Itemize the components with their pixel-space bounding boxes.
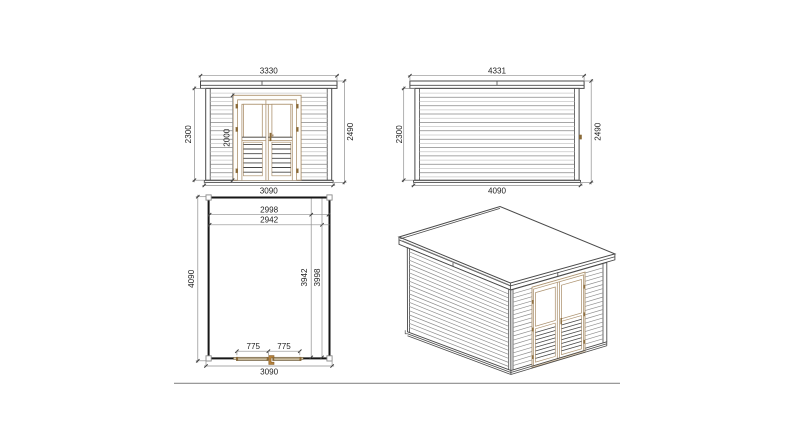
svg-text:4090: 4090 xyxy=(187,269,196,288)
svg-text:3942: 3942 xyxy=(300,268,309,287)
svg-text:2300: 2300 xyxy=(184,125,193,144)
svg-text:2300: 2300 xyxy=(395,125,404,144)
svg-text:2490: 2490 xyxy=(346,122,355,141)
svg-text:3090: 3090 xyxy=(260,186,279,195)
svg-text:2490: 2490 xyxy=(594,122,603,141)
svg-text:2998: 2998 xyxy=(260,205,279,214)
svg-text:775: 775 xyxy=(246,342,260,351)
svg-text:775: 775 xyxy=(277,342,291,351)
svg-text:2942: 2942 xyxy=(260,216,279,225)
svg-text:4331: 4331 xyxy=(488,67,507,76)
svg-text:4090: 4090 xyxy=(488,186,507,195)
svg-text:3998: 3998 xyxy=(313,268,322,287)
svg-text:2000: 2000 xyxy=(222,128,231,147)
svg-text:3330: 3330 xyxy=(260,67,279,76)
svg-text:3090: 3090 xyxy=(260,367,279,376)
